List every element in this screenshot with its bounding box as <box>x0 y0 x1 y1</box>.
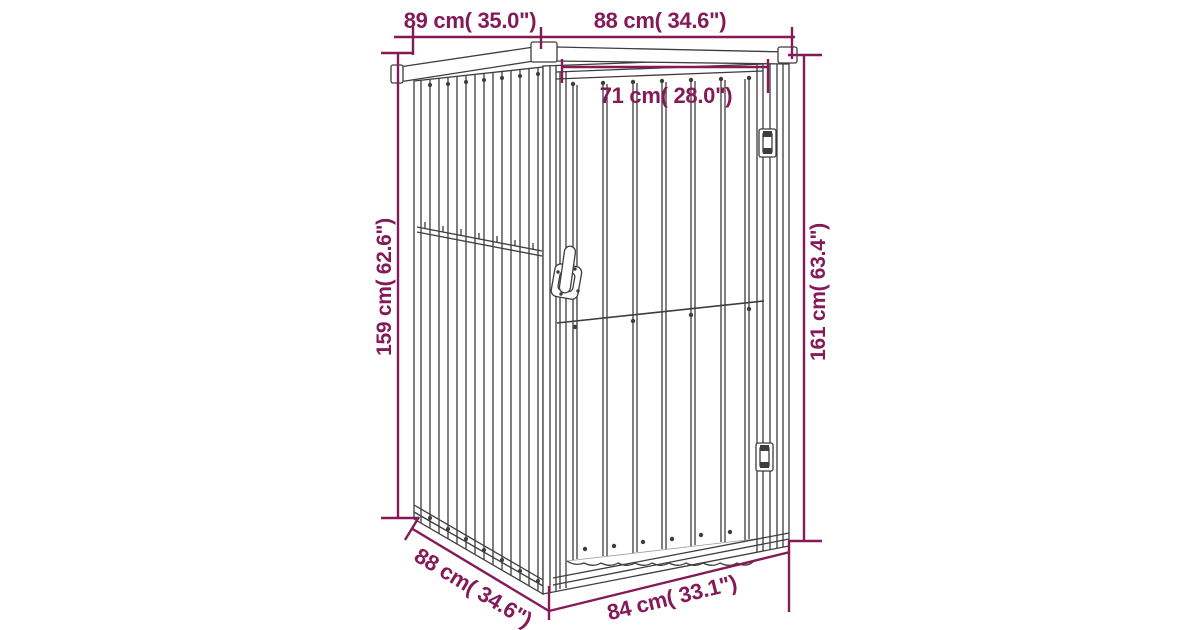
left-wall <box>414 67 543 594</box>
dim-label-door-width: 71 cm( 28.0") <box>600 83 733 108</box>
door-hinge-top <box>759 129 776 157</box>
dim-label-roof-width: 88 cm( 34.6") <box>594 8 727 33</box>
door-hinge-bottom <box>756 443 773 471</box>
dim-label-roof-depth: 89 cm( 35.0") <box>404 8 537 33</box>
product-dimension-diagram: 89 cm( 35.0") 88 cm( 34.6") 71 cm( 28.0"… <box>0 0 1200 630</box>
dim-label-front-height: 161 cm( 63.4") <box>807 223 830 361</box>
dim-label-side-height: 159 cm( 62.6") <box>373 218 396 356</box>
shed-dimension-drawing: 89 cm( 35.0") 88 cm( 34.6") 71 cm( 28.0"… <box>0 0 1200 630</box>
